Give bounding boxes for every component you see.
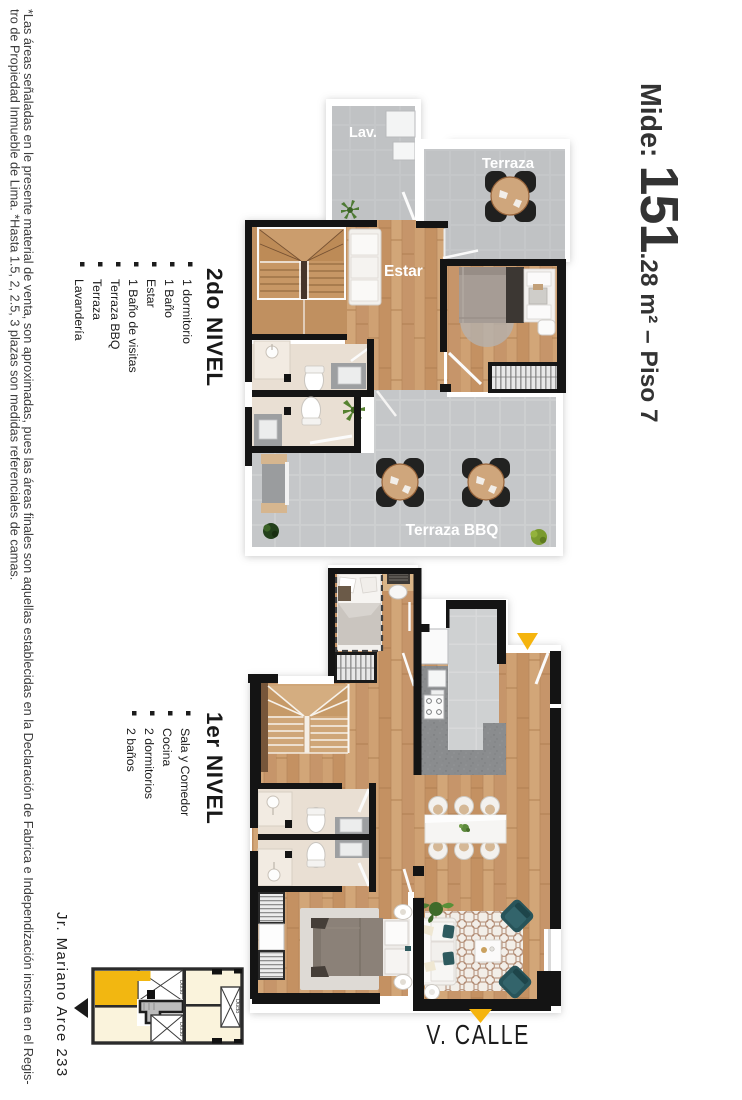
svg-text:Cocina: Cocina (160, 728, 174, 766)
svg-text:1 dormitorio: 1 dormitorio (180, 279, 194, 344)
svg-text:Terraza BBQ: Terraza BBQ (108, 279, 122, 349)
svg-text:Lavandería: Lavandería (72, 279, 86, 341)
svg-text:2 dormitorios: 2 dormitorios (142, 728, 156, 799)
svg-text:1er NIVEL: 1er NIVEL (202, 712, 227, 825)
svg-text:1 Baño: 1 Baño (162, 279, 176, 318)
svg-text:2 baños: 2 baños (124, 728, 138, 772)
svg-text:1 Baño de visitas: 1 Baño de visitas (126, 279, 140, 373)
svg-text:Terraza BBQ: Terraza BBQ (406, 522, 499, 539)
svg-text:Terraza: Terraza (90, 279, 104, 320)
svg-text:Sala y Comedor: Sala y Comedor (178, 728, 192, 816)
svg-text:Jr. Mariano Arce 233: Jr. Mariano Arce 233 (53, 912, 70, 1078)
svg-text:Ducto: Ducto (234, 999, 240, 1013)
svg-text:2do NIVEL: 2do NIVEL (202, 268, 227, 387)
svg-text:Estar: Estar (144, 279, 158, 308)
svg-text:Lav.: Lav. (349, 125, 377, 141)
svg-text:Terraza: Terraza (482, 155, 535, 172)
svg-text:tro de Propiedad Inmueble de L: tro de Propiedad Inmueble de Lima. *Hast… (8, 9, 22, 580)
svg-text:*Las áreas señaladas en le pre: *Las áreas señaladas en le presente mate… (21, 9, 35, 1085)
svg-text:V. CALLE: V. CALLE (426, 1019, 530, 1051)
svg-text:Estar: Estar (384, 263, 423, 280)
